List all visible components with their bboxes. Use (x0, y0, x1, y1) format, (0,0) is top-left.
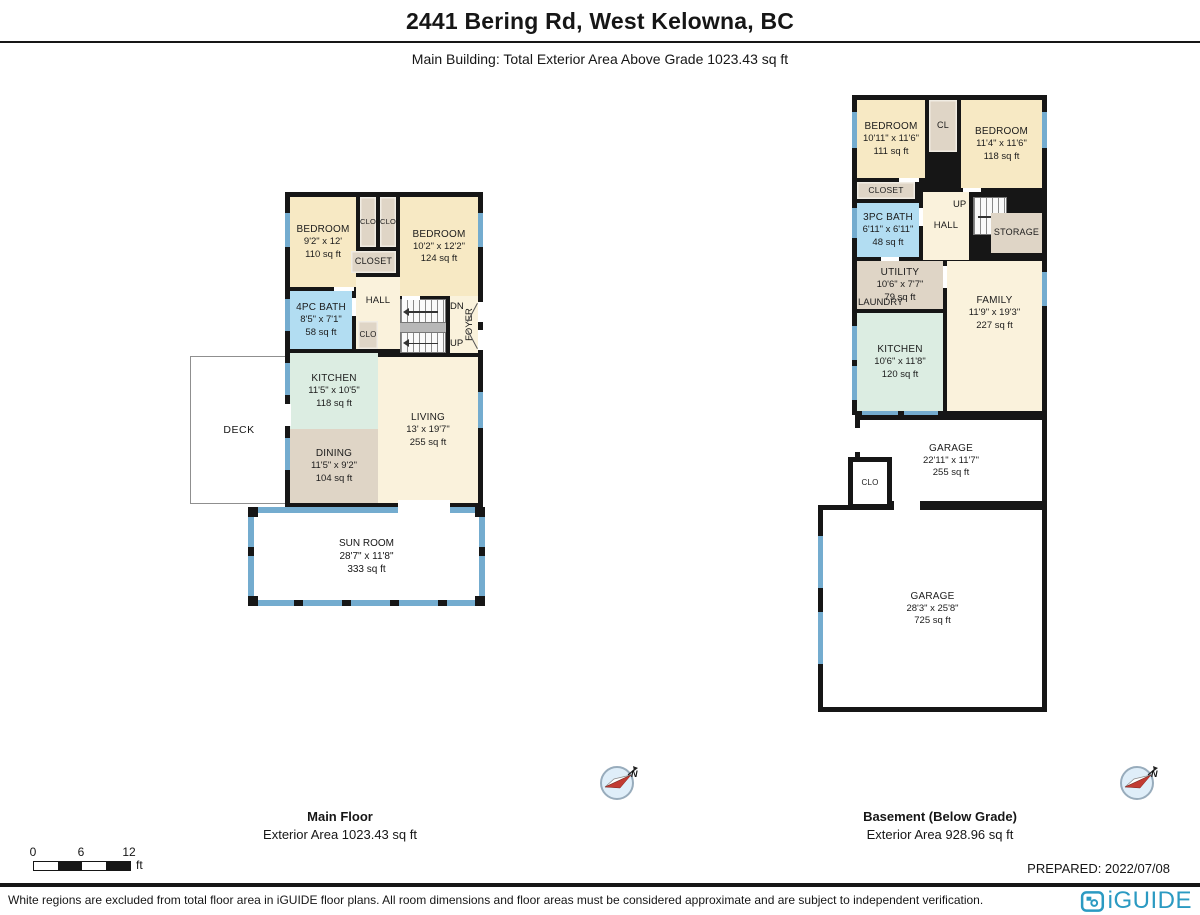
door-opening (919, 208, 923, 226)
floorplan-page: 2441 Bering Rd, West Kelowna, BC Main Bu… (0, 0, 1200, 915)
prepared-date: PREPARED: 2022/07/08 (950, 861, 1170, 876)
wall-post (248, 507, 258, 517)
room-bedroom: BEDROOM 10'2" x 12'2" 124 sq ft (400, 197, 478, 296)
room-closet: CL (929, 100, 957, 152)
window (852, 112, 857, 148)
scale-segment (34, 862, 58, 870)
room-closet: CLOSET (351, 251, 396, 273)
compass-north-label: N (1151, 769, 1158, 779)
window (852, 366, 857, 400)
caption-area: Exterior Area 1023.43 sq ft (190, 826, 490, 844)
window (478, 213, 483, 247)
main-floor-caption: Main Floor Exterior Area 1023.43 sq ft (190, 808, 490, 843)
door-opening (402, 296, 420, 300)
wall-post (475, 507, 485, 517)
scale-segment (106, 862, 130, 870)
window (818, 536, 823, 588)
window (285, 299, 290, 331)
basement-caption: Basement (Below Grade) Exterior Area 928… (790, 808, 1090, 843)
compass-north-label: N (631, 769, 638, 779)
compass-icon: N (1118, 760, 1162, 804)
scale-tick: 12 (119, 845, 139, 859)
window (285, 213, 290, 247)
room-sunroom: SUN ROOM 28'7" x 11'8" 333 sq ft (248, 507, 485, 606)
room-garage: GARAGE 28'3" x 25'8" 725 sq ft (823, 510, 1042, 707)
door-opening (855, 428, 860, 452)
caption-title: Basement (Below Grade) (790, 808, 1090, 826)
window (1042, 112, 1047, 148)
door-opening (963, 188, 981, 192)
room-closet: CLO (853, 462, 887, 504)
door-opening (881, 257, 899, 261)
room-kitchen: KITCHEN 11'5" x 10'5" 118 sq ft (290, 353, 378, 429)
iguide-logo-text: iGUIDE (1108, 887, 1192, 915)
scale-tick: 6 (71, 845, 91, 859)
window (1042, 272, 1047, 306)
window (852, 326, 857, 360)
room-bedroom: BEDROOM 9'2" x 12' 110 sq ft (290, 197, 356, 287)
entry-door-opening (478, 330, 483, 350)
room-family: FAMILY 11'9" x 19'3" 227 sq ft (947, 261, 1042, 411)
room-bedroom: BEDROOM 10'11" x 11'6" 111 sq ft (857, 100, 925, 178)
header-divider (0, 41, 1200, 43)
room-label: DECK (223, 424, 254, 436)
entry-door-opening (478, 302, 483, 322)
room-utility: UTILITY 10'6" x 7'7" 79 sq ft LAUNDRY (857, 261, 943, 309)
iguide-logo-icon (1080, 889, 1105, 914)
footer-divider (0, 883, 1200, 887)
door-opening (899, 178, 919, 182)
door-opening (352, 298, 356, 316)
caption-title: Main Floor (190, 808, 490, 826)
wall-post (479, 547, 485, 556)
window (818, 612, 823, 664)
window (285, 363, 290, 395)
caption-area: Exterior Area 928.96 sq ft (790, 826, 1090, 844)
room-closet: CLO (358, 321, 378, 349)
stair-direction-arrow (405, 311, 438, 313)
footer-disclaimer: White regions are excluded from total fl… (8, 893, 983, 907)
door-opening (894, 501, 920, 510)
deck-area: DECK (190, 356, 288, 504)
room-living: LIVING 13' x 19'7" 255 sq ft (378, 357, 478, 503)
stairs-up-label: UP (953, 199, 966, 210)
room-closet: CLOSET (857, 182, 915, 199)
room-storage: STORAGE (991, 213, 1042, 253)
page-subtitle: Main Building: Total Exterior Area Above… (0, 51, 1200, 67)
scale-bar: 0 6 12 ft (24, 845, 184, 877)
compass-icon: N (598, 760, 642, 804)
staircase-down (400, 299, 446, 323)
scale-bar-segments (33, 861, 131, 871)
room-closet: CLO (360, 197, 376, 247)
staircase-up (400, 332, 446, 353)
room-closet: CLO (380, 197, 396, 247)
wall-post (248, 547, 254, 556)
iguide-logo: iGUIDE (1080, 887, 1192, 915)
window (478, 392, 483, 428)
wall-post (475, 596, 485, 606)
window (852, 208, 857, 238)
wall-post (248, 596, 258, 606)
room-laundry-label: LAUNDRY (858, 297, 903, 309)
stair-direction-arrow (405, 343, 438, 345)
room-bathroom: 4PC BATH 8'5" x 7'1" 58 sq ft (290, 291, 352, 349)
door-opening (398, 500, 450, 514)
scale-unit: ft (136, 858, 143, 872)
wall-post (438, 600, 447, 606)
wall-post (342, 600, 351, 606)
scale-tick: 0 (23, 845, 43, 859)
room-bathroom: 3PC BATH 6'11" x 6'11" 48 sq ft (857, 203, 919, 257)
room-bedroom: BEDROOM 11'4" x 11'6" 118 sq ft (961, 100, 1042, 188)
wall-post (294, 600, 303, 606)
window (285, 438, 290, 470)
door-opening (943, 266, 947, 288)
door-opening (284, 404, 291, 426)
room-kitchen: KITCHEN 10'6" x 11'8" 120 sq ft (857, 313, 943, 411)
room-dining: DINING 11'5" x 9'2" 104 sq ft (290, 429, 378, 503)
door-opening (334, 287, 354, 291)
scale-segment (58, 862, 82, 870)
page-title: 2441 Bering Rd, West Kelowna, BC (0, 8, 1200, 35)
scale-segment (82, 862, 106, 870)
wall-post (390, 600, 399, 606)
